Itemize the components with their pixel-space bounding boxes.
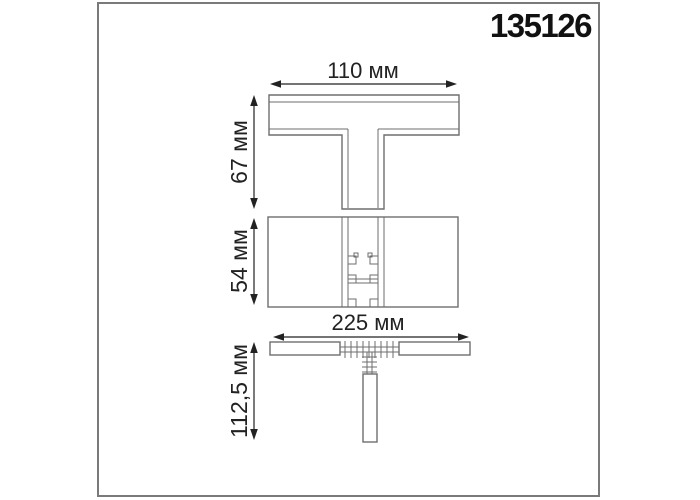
arrowhead-right-icon bbox=[446, 80, 457, 88]
top-view-outline bbox=[269, 95, 459, 209]
dimension-label-bottom-height: 112,5 мм bbox=[226, 344, 252, 438]
side-view-right-bar bbox=[399, 342, 470, 355]
front-view-outline bbox=[268, 217, 458, 307]
arrowhead-up-icon bbox=[250, 218, 258, 229]
bottom-block-right bbox=[370, 299, 378, 307]
dimension-bottom-height: 112,5 мм bbox=[226, 342, 258, 440]
part-number: 135126 bbox=[490, 7, 592, 44]
top-view-inner-lines bbox=[269, 102, 459, 208]
arrowhead-left-icon bbox=[270, 80, 281, 88]
arrowhead-down-icon bbox=[250, 198, 258, 209]
arrowhead-down-icon bbox=[250, 294, 258, 305]
top-view bbox=[269, 95, 459, 209]
arrowhead-left-icon bbox=[273, 333, 284, 341]
dimension-label-middle-height: 54 мм bbox=[226, 229, 252, 293]
flex-joint-horizontal bbox=[340, 341, 399, 358]
dimension-label-top-width: 110 мм bbox=[327, 58, 398, 83]
arrowhead-up-icon bbox=[250, 95, 258, 106]
side-view-stem bbox=[363, 374, 377, 442]
technical-drawing-canvas: 135126 110 мм 67 мм bbox=[0, 0, 700, 500]
side-view-left-bar bbox=[270, 342, 340, 355]
side-view bbox=[270, 341, 470, 442]
dimension-bottom-width: 225 мм bbox=[273, 310, 469, 341]
dimension-top-width: 110 мм bbox=[270, 58, 457, 88]
dimension-label-top-height: 67 мм bbox=[226, 120, 252, 184]
bottom-block-left bbox=[348, 299, 356, 307]
dimension-middle-height: 54 мм bbox=[226, 218, 258, 305]
front-view-inner-lines bbox=[342, 217, 384, 307]
drawing-sheet: 135126 110 мм 67 мм bbox=[0, 0, 700, 500]
front-view bbox=[268, 217, 458, 307]
arrowhead-right-icon bbox=[458, 333, 469, 341]
dimension-top-height: 67 мм bbox=[226, 95, 258, 209]
dimension-label-bottom-width: 225 мм bbox=[331, 310, 404, 335]
